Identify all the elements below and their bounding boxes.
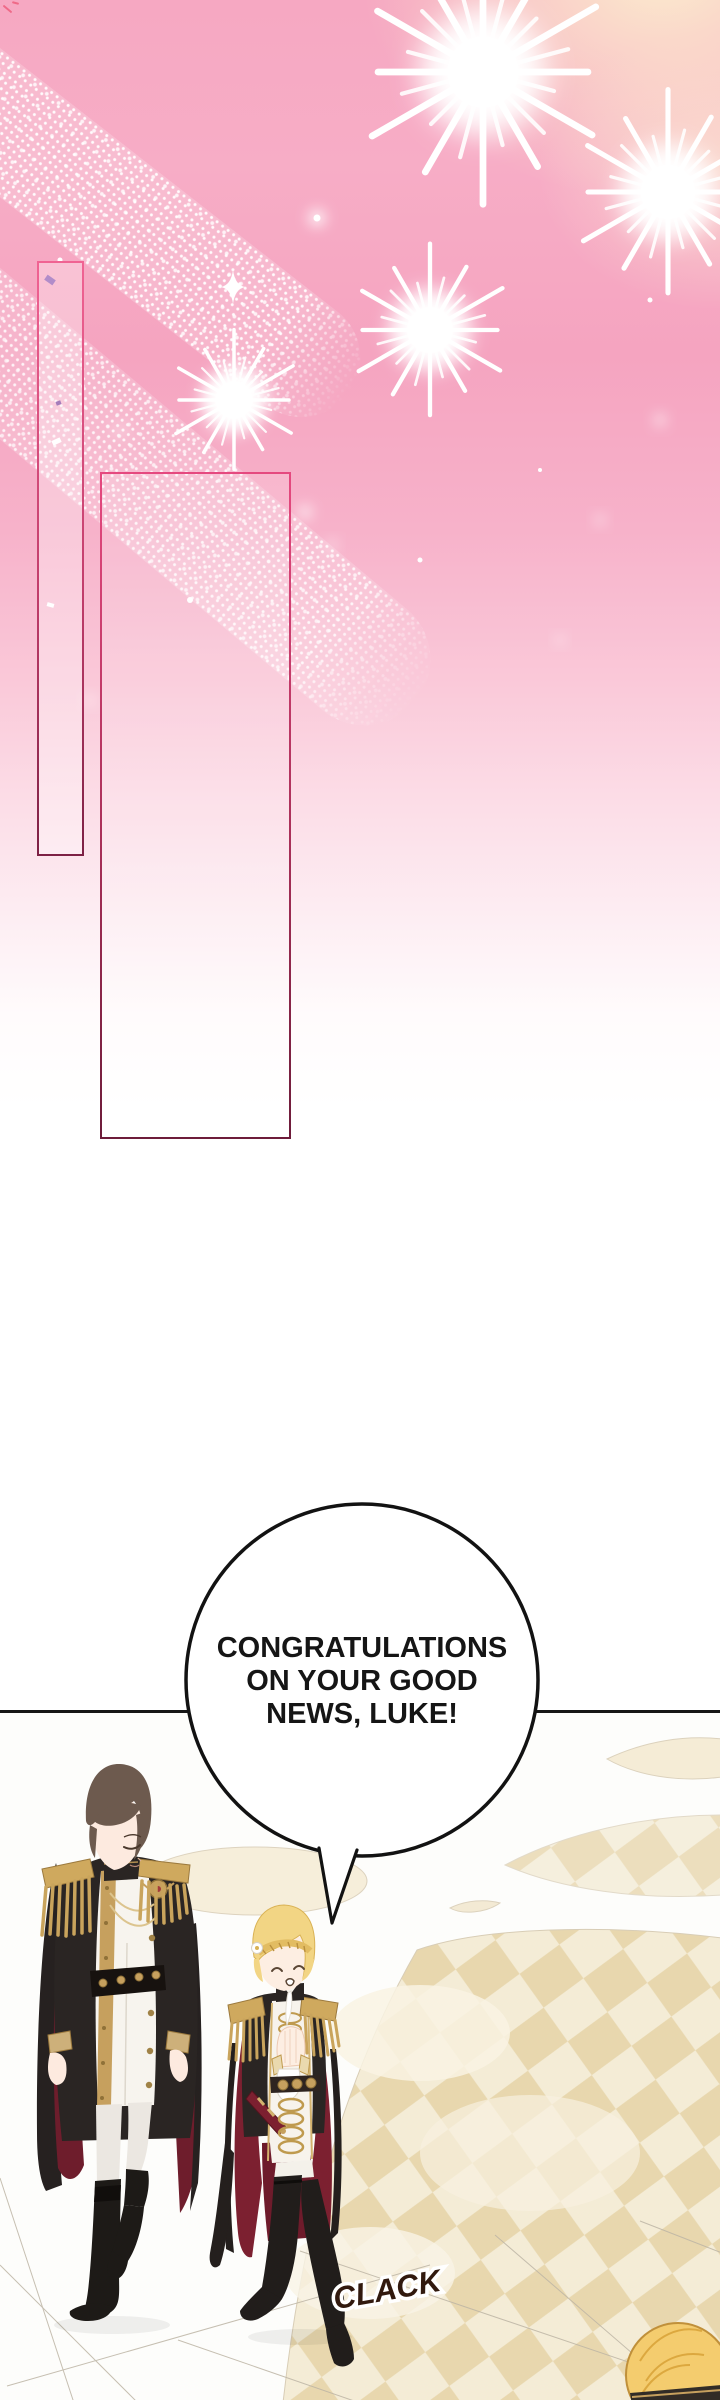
speech-bubble: CONGRATULATIONS ON YOUR GOOD NEWS, LUKE! [162, 1495, 562, 1955]
confetti-icon [55, 400, 61, 405]
panel-frame-wide [100, 472, 291, 1139]
firework-burst-icon [583, 90, 720, 293]
character-corner [626, 2323, 720, 2400]
webtoon-page: CLACK CLACK CONGRATULATIONS ON YOUR GOOD… [0, 0, 720, 2400]
confetti-icon [51, 437, 61, 445]
firework-burst-icon [359, 244, 503, 415]
firework-burst-icon [372, 0, 596, 204]
confetti-icon [47, 602, 55, 608]
sparkle-diamond-icon [221, 270, 245, 304]
speech-bubble-text: CONGRATULATIONS ON YOUR GOOD NEWS, LUKE! [202, 1632, 522, 1731]
panel-frame-narrow [37, 261, 84, 856]
speech-line: CONGRATULATIONS [202, 1632, 522, 1665]
speech-line: NEWS, LUKE! [202, 1698, 522, 1731]
confetti-icon [44, 275, 56, 286]
firework-burst-icon [176, 330, 293, 470]
speech-line: ON YOUR GOOD [202, 1665, 522, 1698]
